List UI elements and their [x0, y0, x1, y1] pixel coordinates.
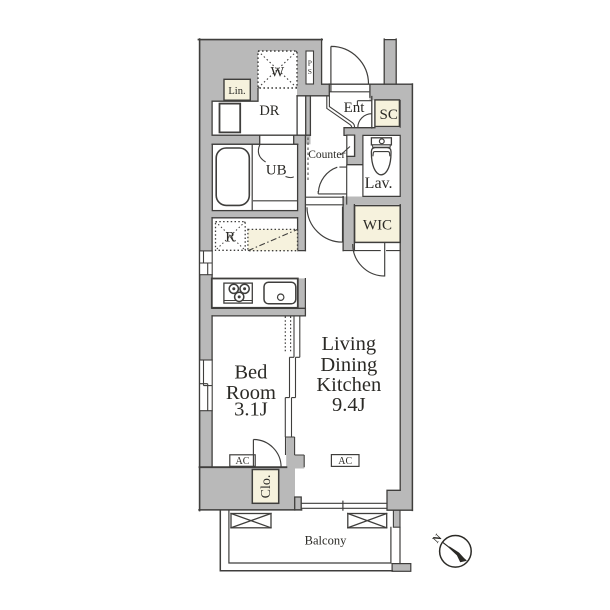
- svg-text:Kitchen: Kitchen: [316, 374, 381, 396]
- svg-text:W: W: [270, 64, 284, 80]
- svg-text:WIC: WIC: [363, 218, 392, 234]
- svg-text:DR: DR: [259, 103, 279, 119]
- svg-text:9.4J: 9.4J: [332, 394, 366, 416]
- svg-text:AC: AC: [236, 456, 250, 467]
- svg-text:Balcony: Balcony: [305, 534, 347, 548]
- svg-text:UB: UB: [266, 163, 287, 179]
- svg-text:Ent: Ent: [344, 100, 366, 116]
- svg-text:Lav.: Lav.: [365, 175, 393, 192]
- svg-text:R: R: [225, 230, 235, 246]
- svg-text:Counter: Counter: [308, 149, 345, 161]
- svg-text:AC: AC: [338, 456, 352, 467]
- svg-text:Clo.: Clo.: [259, 475, 274, 499]
- svg-text:S: S: [308, 67, 312, 76]
- svg-text:SC: SC: [380, 107, 398, 123]
- svg-text:Lin.: Lin.: [228, 86, 245, 97]
- svg-text:3.1J: 3.1J: [234, 398, 268, 420]
- svg-text:N: N: [431, 532, 445, 545]
- svg-text:Dining: Dining: [320, 354, 377, 376]
- svg-text:Bed: Bed: [234, 361, 267, 383]
- svg-text:Living: Living: [321, 333, 376, 355]
